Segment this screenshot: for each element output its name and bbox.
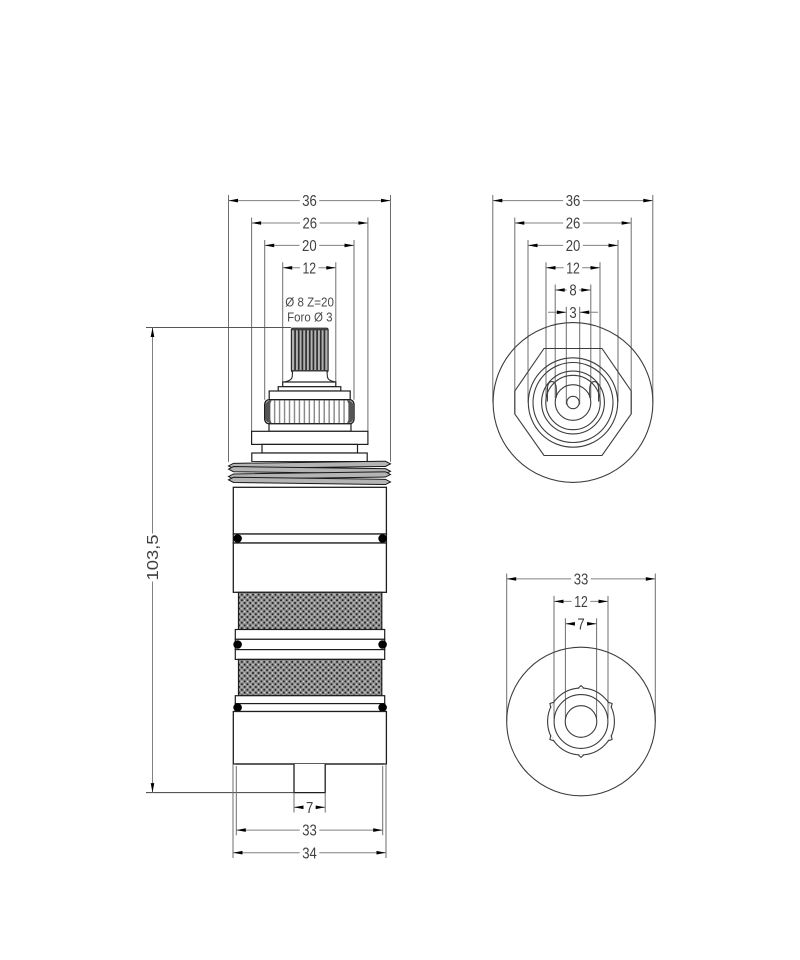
svg-text:33: 33 xyxy=(302,823,317,840)
svg-text:8: 8 xyxy=(569,283,576,300)
svg-text:26: 26 xyxy=(302,216,317,233)
svg-text:Ø 8 Z=20: Ø 8 Z=20 xyxy=(285,296,334,310)
svg-text:7: 7 xyxy=(306,800,313,817)
svg-text:33: 33 xyxy=(574,572,589,589)
svg-text:20: 20 xyxy=(302,238,317,255)
svg-text:Foro Ø 3: Foro Ø 3 xyxy=(287,310,332,324)
svg-text:34: 34 xyxy=(302,845,317,862)
svg-text:103,5: 103,5 xyxy=(145,534,162,580)
svg-text:3: 3 xyxy=(569,305,576,322)
svg-text:7: 7 xyxy=(577,616,584,633)
svg-text:12: 12 xyxy=(566,260,580,277)
svg-text:36: 36 xyxy=(566,193,581,210)
svg-text:12: 12 xyxy=(302,260,316,277)
svg-text:20: 20 xyxy=(566,238,581,255)
svg-text:26: 26 xyxy=(566,216,581,233)
svg-text:36: 36 xyxy=(302,193,317,210)
svg-text:12: 12 xyxy=(574,594,588,611)
